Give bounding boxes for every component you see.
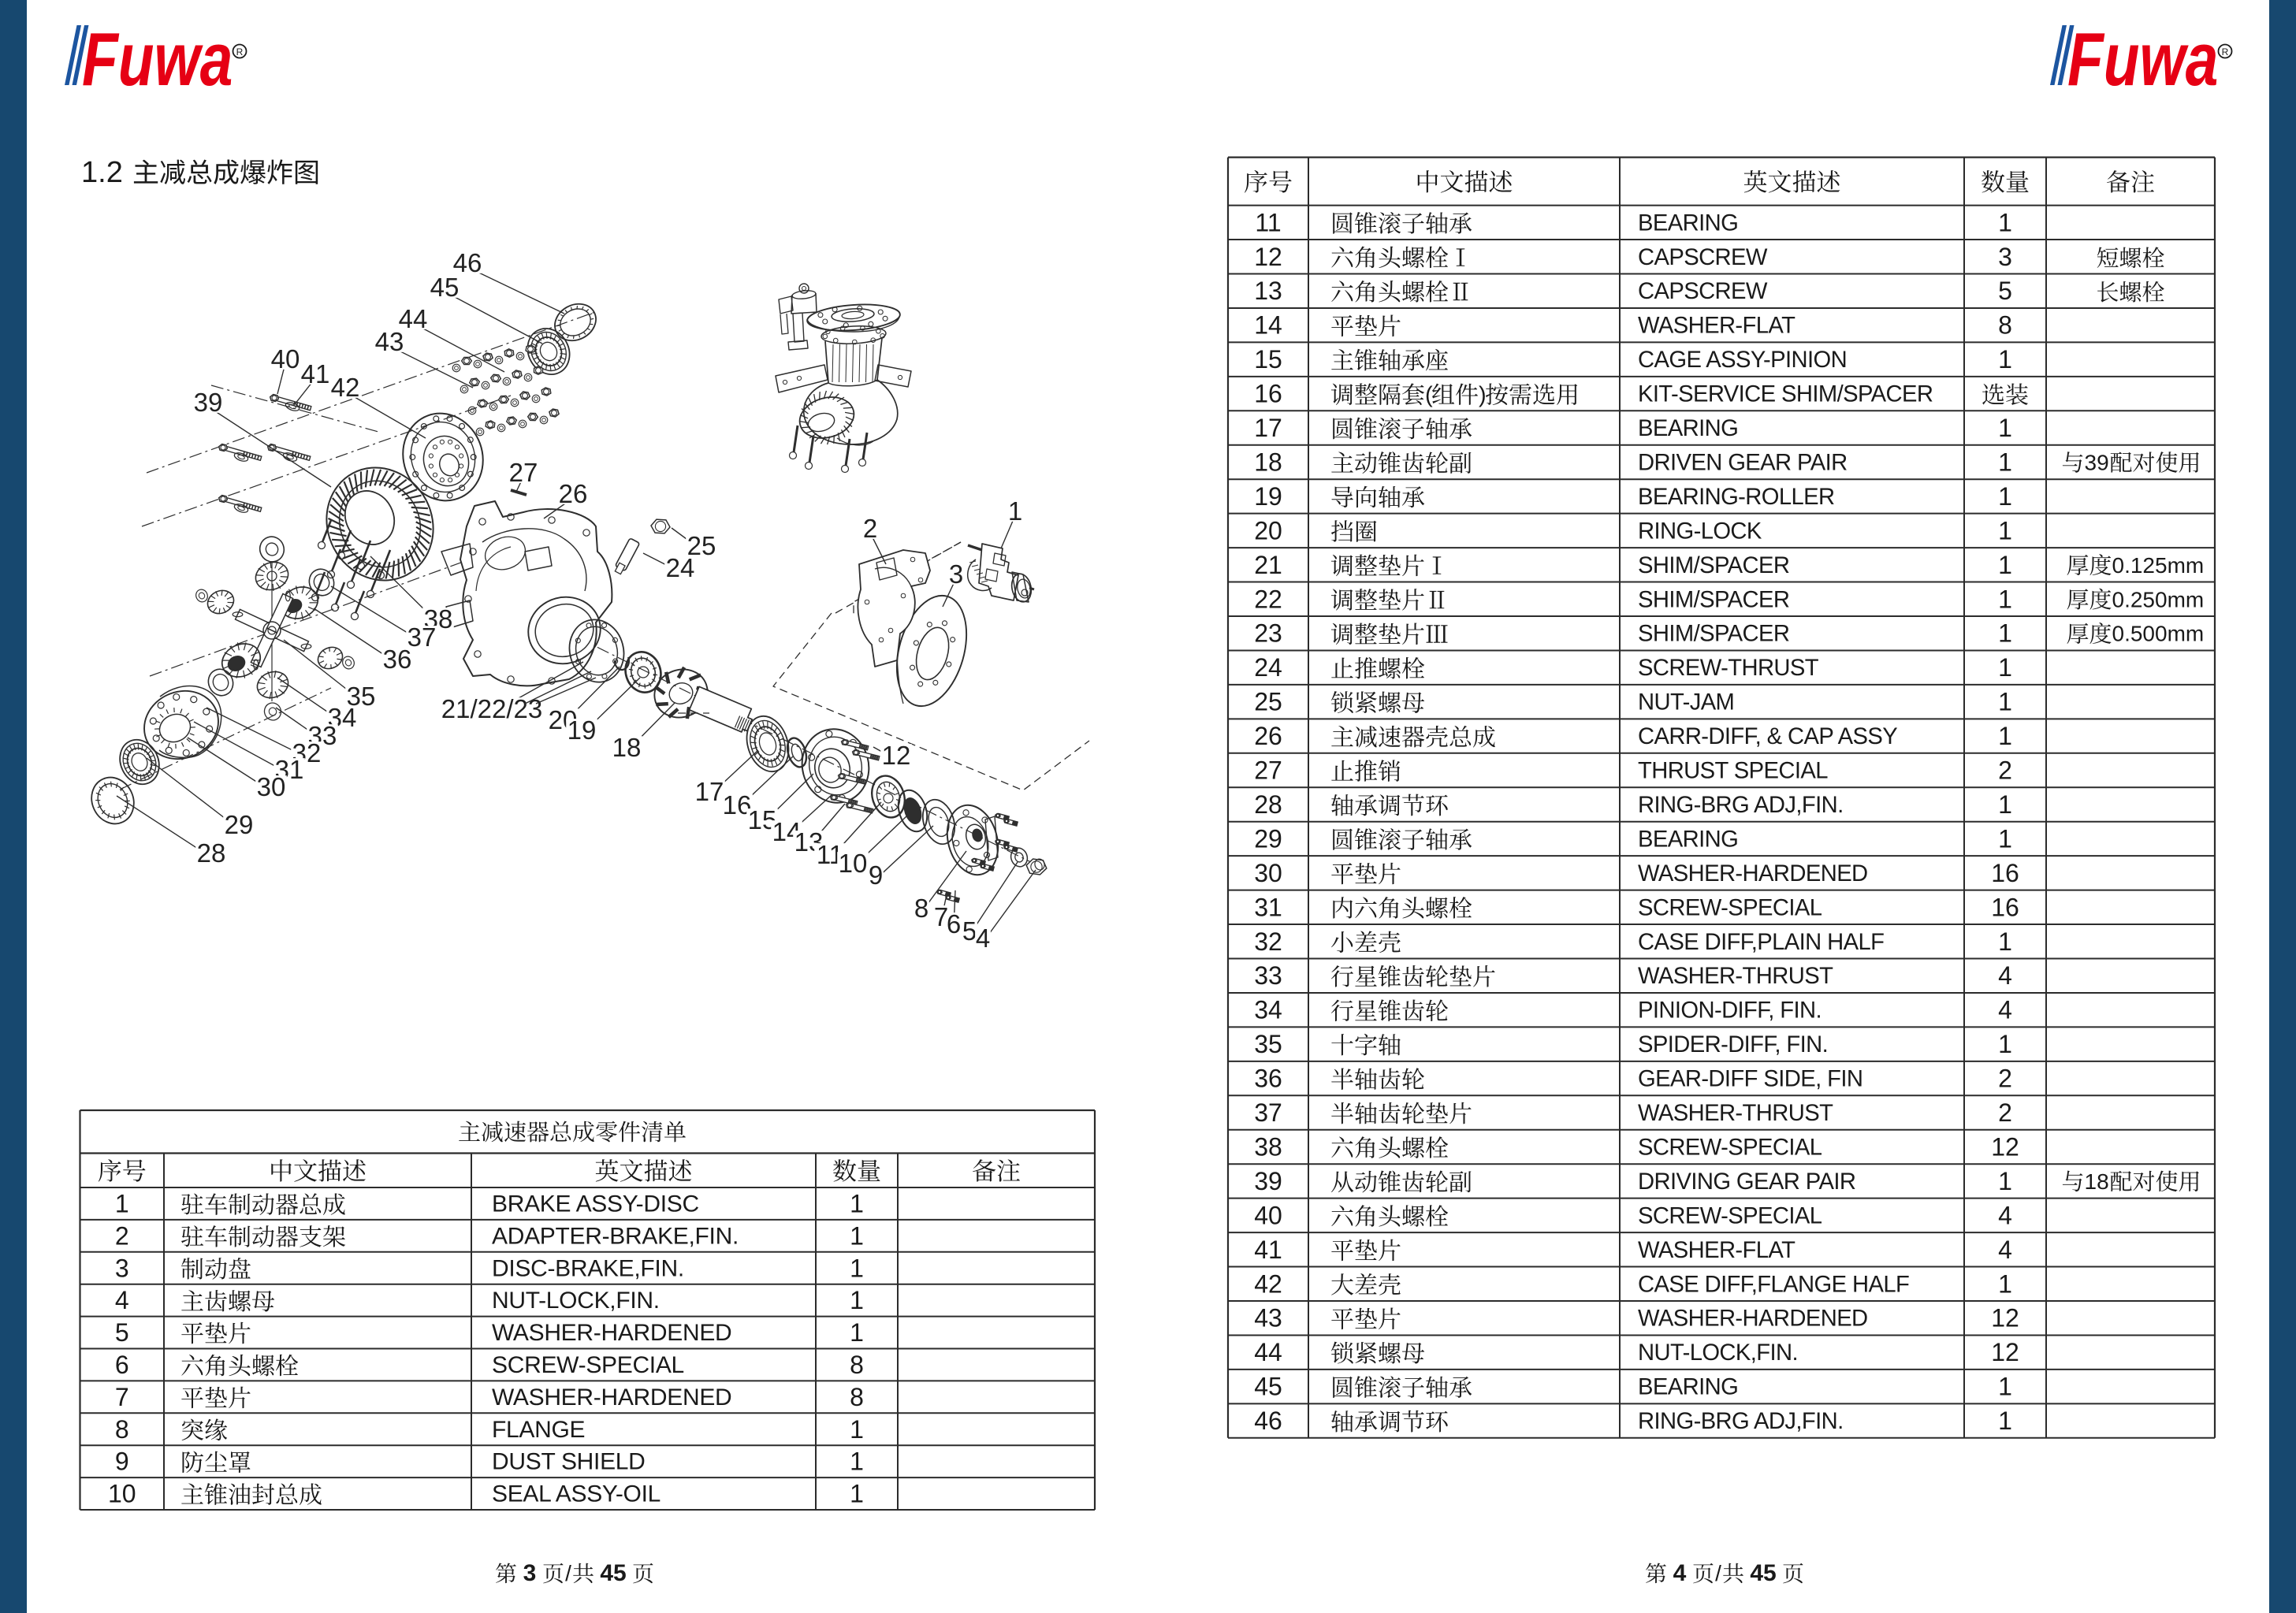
svg-text:16: 16 <box>1991 859 2019 887</box>
svg-text:CASE DIFF,FLANGE HALF: CASE DIFF,FLANGE HALF <box>1638 1272 1909 1297</box>
svg-text:24: 24 <box>1254 653 1282 682</box>
svg-text:/: / <box>1715 1561 1721 1585</box>
svg-text:1: 1 <box>850 1286 864 1314</box>
svg-text:10: 10 <box>108 1480 136 1508</box>
svg-text:13: 13 <box>1254 277 1282 305</box>
svg-text:44: 44 <box>1254 1338 1282 1366</box>
svg-text:46: 46 <box>1254 1407 1282 1435</box>
svg-text:CARR-DIFF, & CAP ASSY: CARR-DIFF, & CAP ASSY <box>1638 724 1897 749</box>
svg-text:0.500mm: 0.500mm <box>2112 622 2205 646</box>
svg-text:SCREW-THRUST: SCREW-THRUST <box>1638 656 1819 681</box>
svg-text:1: 1 <box>1008 496 1022 526</box>
svg-text:4: 4 <box>1998 1201 2012 1229</box>
svg-text:RING-BRG ADJ,FIN.: RING-BRG ADJ,FIN. <box>1638 1409 1844 1434</box>
svg-text:0.250mm: 0.250mm <box>2112 587 2205 611</box>
svg-text:1: 1 <box>115 1189 129 1217</box>
svg-text:28: 28 <box>1254 790 1282 819</box>
svg-text:1: 1 <box>1998 619 2012 648</box>
svg-text:35: 35 <box>1254 1030 1282 1058</box>
svg-text:4: 4 <box>976 924 990 953</box>
svg-text:37: 37 <box>1254 1098 1282 1127</box>
svg-text:12: 12 <box>1991 1338 2019 1366</box>
svg-text:19: 19 <box>1254 482 1282 511</box>
svg-text:SCREW-SPECIAL: SCREW-SPECIAL <box>1638 1135 1822 1160</box>
svg-text:30: 30 <box>257 772 286 801</box>
svg-text:WASHER-FLAT: WASHER-FLAT <box>1638 314 1795 339</box>
svg-text:WASHER-FLAT: WASHER-FLAT <box>1638 1238 1795 1263</box>
svg-text:41: 41 <box>1254 1236 1282 1264</box>
svg-text:18: 18 <box>2085 1169 2109 1194</box>
svg-text:22: 22 <box>1254 585 1282 613</box>
svg-text:KIT-SERVICE SHIM/SPACER: KIT-SERVICE SHIM/SPACER <box>1638 382 1933 407</box>
svg-text:RING-LOCK: RING-LOCK <box>1638 518 1762 544</box>
svg-text:CAPSCREW: CAPSCREW <box>1638 245 1768 270</box>
svg-text:ADAPTER-BRAKE,FIN.: ADAPTER-BRAKE,FIN. <box>492 1223 739 1249</box>
svg-text:2: 2 <box>1998 1098 2012 1127</box>
svg-text:2: 2 <box>1998 756 2012 785</box>
svg-text:21: 21 <box>1254 551 1282 579</box>
svg-text:4: 4 <box>1673 1560 1687 1586</box>
svg-text:17: 17 <box>1254 414 1282 442</box>
svg-text:1: 1 <box>1998 653 2012 682</box>
svg-text:20: 20 <box>1254 516 1282 544</box>
svg-text:1: 1 <box>1998 345 2012 374</box>
svg-text:9: 9 <box>115 1448 129 1476</box>
svg-text:6: 6 <box>947 909 961 938</box>
svg-text:0.125mm: 0.125mm <box>2112 553 2205 578</box>
svg-text:1: 1 <box>850 1189 864 1217</box>
svg-text:WASHER-THRUST: WASHER-THRUST <box>1638 964 1833 989</box>
svg-text:SHIM/SPACER: SHIM/SPACER <box>1638 622 1789 647</box>
svg-text:10: 10 <box>839 849 868 878</box>
svg-text:18: 18 <box>612 733 642 762</box>
svg-text:R: R <box>236 46 244 58</box>
svg-text:WASHER-HARDENED: WASHER-HARDENED <box>492 1384 731 1410</box>
svg-text:39: 39 <box>2085 450 2109 474</box>
svg-text:DRIVING GEAR PAIR: DRIVING GEAR PAIR <box>1638 1169 1855 1195</box>
svg-text:SEAL ASSY-OIL: SEAL ASSY-OIL <box>492 1481 661 1507</box>
svg-text:1: 1 <box>1998 927 2012 956</box>
svg-text:SHIM/SPACER: SHIM/SPACER <box>1638 553 1789 578</box>
svg-text:5: 5 <box>115 1318 129 1347</box>
svg-text:40: 40 <box>271 344 300 374</box>
svg-text:1: 1 <box>1998 448 2012 476</box>
svg-text:1: 1 <box>1998 790 2012 819</box>
svg-text:18: 18 <box>1254 448 1282 476</box>
svg-text:29: 29 <box>1254 824 1282 853</box>
svg-text:45: 45 <box>430 273 460 302</box>
svg-text:2: 2 <box>1998 1065 2012 1093</box>
svg-text:1: 1 <box>850 1480 864 1508</box>
svg-text:1: 1 <box>1998 414 2012 442</box>
svg-text:2: 2 <box>863 514 877 543</box>
svg-text:32: 32 <box>1254 927 1282 956</box>
svg-text:DRIVEN GEAR PAIR: DRIVEN GEAR PAIR <box>1638 450 1848 475</box>
svg-text:5: 5 <box>1998 277 2012 305</box>
svg-text:1: 1 <box>1998 1167 2012 1195</box>
svg-text:26: 26 <box>1254 722 1282 750</box>
svg-text:8: 8 <box>850 1383 864 1411</box>
svg-text:6: 6 <box>115 1351 129 1379</box>
svg-text:BEARING: BEARING <box>1638 827 1738 852</box>
svg-text:CAGE ASSY-PINION: CAGE ASSY-PINION <box>1638 348 1847 373</box>
svg-text:24: 24 <box>666 553 695 582</box>
svg-text:SCREW-SPECIAL: SCREW-SPECIAL <box>1638 1203 1822 1228</box>
svg-text:1: 1 <box>1998 1030 2012 1058</box>
svg-text:12: 12 <box>1991 1132 2019 1161</box>
svg-text:43: 43 <box>375 327 404 356</box>
svg-text:3: 3 <box>115 1254 129 1282</box>
svg-text:31: 31 <box>1254 893 1282 921</box>
svg-text:1: 1 <box>850 1448 864 1476</box>
svg-text:39: 39 <box>194 388 223 417</box>
svg-text:DISC-BRAKE,FIN.: DISC-BRAKE,FIN. <box>492 1255 684 1281</box>
svg-text:7: 7 <box>115 1383 129 1411</box>
svg-text:1: 1 <box>1998 208 2012 236</box>
svg-text:45: 45 <box>600 1560 626 1586</box>
svg-text:R: R <box>2222 46 2229 58</box>
svg-text:THRUST SPECIAL: THRUST SPECIAL <box>1638 759 1828 784</box>
svg-text:9: 9 <box>869 860 883 890</box>
svg-text:17: 17 <box>695 777 724 806</box>
svg-text:DUST SHIELD: DUST SHIELD <box>492 1449 646 1475</box>
svg-text:16: 16 <box>1991 893 2019 921</box>
svg-text:BEARING: BEARING <box>1638 210 1738 236</box>
svg-text:11: 11 <box>1255 208 1281 236</box>
svg-text:FLANGE: FLANGE <box>492 1417 585 1443</box>
svg-text:12: 12 <box>882 741 911 770</box>
svg-text:12: 12 <box>1254 243 1282 271</box>
svg-text:4: 4 <box>1998 961 2012 990</box>
svg-text:16: 16 <box>1254 380 1282 408</box>
svg-text:WASHER-HARDENED: WASHER-HARDENED <box>1638 1306 1868 1332</box>
svg-text:RING-BRG ADJ,FIN.: RING-BRG ADJ,FIN. <box>1638 793 1844 818</box>
svg-text:42: 42 <box>1254 1269 1282 1298</box>
svg-text:1: 1 <box>1998 722 2012 750</box>
svg-text:30: 30 <box>1254 859 1282 887</box>
svg-text:BEARING-ROLLER: BEARING-ROLLER <box>1638 485 1835 510</box>
svg-text:34: 34 <box>1254 996 1282 1024</box>
svg-text:Fuwa: Fuwa <box>2067 17 2218 102</box>
svg-text:NUT-LOCK,FIN.: NUT-LOCK,FIN. <box>492 1288 660 1314</box>
svg-text:1: 1 <box>1998 516 2012 544</box>
svg-text:1: 1 <box>850 1254 864 1282</box>
svg-text:28: 28 <box>197 838 226 868</box>
svg-text:3: 3 <box>523 1560 537 1586</box>
svg-text:27: 27 <box>1254 756 1282 785</box>
svg-text:21/22/23: 21/22/23 <box>441 694 542 723</box>
svg-text:1: 1 <box>1998 482 2012 511</box>
svg-text:14: 14 <box>1254 311 1282 340</box>
svg-text:8: 8 <box>1998 311 2012 340</box>
svg-text:1: 1 <box>850 1221 864 1250</box>
svg-text:BEARING: BEARING <box>1638 1375 1738 1400</box>
svg-text:3: 3 <box>949 559 963 589</box>
svg-text:1: 1 <box>850 1318 864 1347</box>
svg-text:SCREW-SPECIAL: SCREW-SPECIAL <box>492 1352 684 1378</box>
svg-text:): ) <box>1479 383 1487 408</box>
svg-text:Fuwa: Fuwa <box>82 17 233 102</box>
svg-text:WASHER-HARDENED: WASHER-HARDENED <box>1638 861 1868 886</box>
svg-text:36: 36 <box>1254 1065 1282 1093</box>
svg-text:NUT-LOCK,FIN.: NUT-LOCK,FIN. <box>1638 1340 1798 1366</box>
svg-text:BEARING: BEARING <box>1638 416 1738 441</box>
svg-text:43: 43 <box>1254 1304 1282 1332</box>
svg-text:SPIDER-DIFF, FIN.: SPIDER-DIFF, FIN. <box>1638 1032 1828 1057</box>
svg-text:GEAR-DIFF SIDE, FIN: GEAR-DIFF SIDE, FIN <box>1638 1067 1862 1092</box>
svg-text:(: ( <box>1425 383 1433 408</box>
svg-text:42: 42 <box>331 373 360 402</box>
svg-text:26: 26 <box>559 479 588 508</box>
svg-text:1.2: 1.2 <box>81 156 123 189</box>
svg-text:NUT-JAM: NUT-JAM <box>1638 690 1734 715</box>
svg-text:27: 27 <box>509 458 538 487</box>
svg-text:1: 1 <box>1998 551 2012 579</box>
svg-text:1: 1 <box>1998 585 2012 613</box>
svg-text:CAPSCREW: CAPSCREW <box>1638 279 1768 304</box>
svg-text:CASE DIFF,PLAIN HALF: CASE DIFF,PLAIN HALF <box>1638 930 1884 955</box>
svg-text:39: 39 <box>1254 1167 1282 1195</box>
svg-text:4: 4 <box>1998 1236 2012 1264</box>
svg-text:8: 8 <box>115 1415 129 1444</box>
svg-text:PINION-DIFF, FIN.: PINION-DIFF, FIN. <box>1638 998 1822 1024</box>
svg-text:/: / <box>565 1561 571 1585</box>
svg-text:15: 15 <box>1254 345 1282 374</box>
svg-text:41: 41 <box>301 359 330 388</box>
svg-text:33: 33 <box>1254 961 1282 990</box>
svg-text:3: 3 <box>1998 243 2012 271</box>
svg-text:8: 8 <box>914 894 928 923</box>
svg-text:1: 1 <box>1998 688 2012 716</box>
svg-text:1: 1 <box>1998 1373 2012 1401</box>
svg-text:45: 45 <box>1750 1560 1776 1586</box>
svg-text:1: 1 <box>1998 1269 2012 1298</box>
svg-text:4: 4 <box>1998 996 2012 1024</box>
svg-text:4: 4 <box>115 1286 129 1314</box>
svg-text:23: 23 <box>1254 619 1282 648</box>
svg-text:8: 8 <box>850 1351 864 1379</box>
svg-text:19: 19 <box>567 715 597 745</box>
svg-text:SCREW-SPECIAL: SCREW-SPECIAL <box>1638 895 1822 920</box>
svg-text:BRAKE ASSY-DISC: BRAKE ASSY-DISC <box>492 1191 699 1217</box>
svg-text:5: 5 <box>962 916 977 946</box>
svg-text:38: 38 <box>1254 1132 1282 1161</box>
svg-text:2: 2 <box>115 1221 129 1250</box>
svg-text:1: 1 <box>1998 824 2012 853</box>
svg-text:WASHER-HARDENED: WASHER-HARDENED <box>492 1320 731 1346</box>
svg-text:29: 29 <box>225 810 254 839</box>
svg-text:WASHER-THRUST: WASHER-THRUST <box>1638 1101 1833 1126</box>
svg-text:SHIM/SPACER: SHIM/SPACER <box>1638 587 1789 612</box>
svg-text:25: 25 <box>1254 688 1282 716</box>
svg-text:1: 1 <box>850 1415 864 1444</box>
svg-text:45: 45 <box>1254 1373 1282 1401</box>
svg-text:1: 1 <box>1998 1407 2012 1435</box>
svg-text:12: 12 <box>1991 1304 2019 1332</box>
svg-text:36: 36 <box>383 645 412 674</box>
svg-text:40: 40 <box>1254 1201 1282 1229</box>
